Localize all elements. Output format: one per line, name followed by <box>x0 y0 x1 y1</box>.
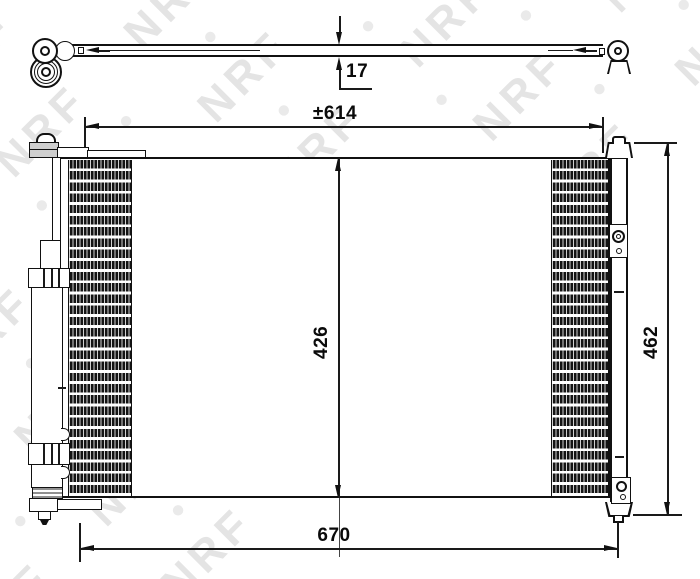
condenser-top-view: 17 <box>0 0 700 100</box>
top-view-left-pin-stem <box>99 50 110 52</box>
drier-clamp-lower <box>28 443 70 465</box>
left-upper-fitting-hole <box>40 46 50 56</box>
top-view-right-pin-stem <box>586 50 597 52</box>
drier-clamp-lower-div1 <box>43 444 45 464</box>
drier-weld-tick <box>58 387 66 389</box>
dim426-top-arrow-icon <box>335 158 341 171</box>
dim426-line <box>338 158 340 498</box>
drier-top-bracket-inner <box>57 147 89 158</box>
dim670-left-arrow-icon <box>81 545 94 551</box>
dim462-label: 462 <box>641 303 663 359</box>
dim17-leader <box>339 88 372 90</box>
lower-fitting-bolt-hole <box>620 494 626 500</box>
right-header-top-cap-face <box>607 144 631 158</box>
dim670-right-arrow-icon <box>604 545 617 551</box>
top-view-right-pin-arrow-icon <box>573 47 586 53</box>
right-fitting-hole <box>614 47 622 55</box>
drier-clamp-upper-div1 <box>43 269 45 287</box>
right-header-tank <box>610 157 628 503</box>
dim462-ext-bottom <box>633 514 682 516</box>
dim17-upper-arrow-icon <box>336 32 342 45</box>
dim670-ext-left <box>79 523 81 562</box>
lower-fitting-port-ring <box>616 481 627 492</box>
dim17-label: 17 <box>346 61 368 83</box>
condenser-core-outline <box>59 157 610 498</box>
drier-clamp-upper-div2 <box>51 269 53 287</box>
drier-clamp-upper-div3 <box>58 269 60 287</box>
left-fitting-port-hole <box>41 67 51 77</box>
drier-pipe <box>52 158 61 241</box>
top-view-left-leader-line <box>110 50 260 51</box>
right-header-bottom-nub <box>613 516 624 523</box>
upper-fitting-port-hole <box>616 234 621 239</box>
dim462-line <box>667 143 669 515</box>
right-fitting-bracket-face <box>609 62 629 74</box>
drawing-layer: 17 ±614 <box>0 0 700 579</box>
dim426-bottom-arrow-icon <box>335 485 341 498</box>
top-view-left-pin-arrow-icon <box>86 47 99 53</box>
right-header-weld-tick-lower <box>615 456 624 458</box>
drier-clamp-lower-div2 <box>51 444 53 464</box>
drier-bottom-cap <box>29 498 58 512</box>
drier-clamp-lower-div3 <box>58 444 60 464</box>
drier-bottom-bracket <box>57 499 102 510</box>
dim614-left-arrow-icon <box>86 123 99 129</box>
dim670-line <box>80 548 618 550</box>
dim17-lower-arrow-icon <box>336 57 342 70</box>
drier-cap-ring-2 <box>29 149 59 158</box>
top-view-right-leader-line <box>548 50 573 51</box>
top-view-left-pin-block <box>78 47 84 54</box>
drier-clamp-upper <box>28 268 70 288</box>
dim426-label: 426 <box>311 303 333 359</box>
drier-drain-nozzle <box>38 511 51 520</box>
dim462-bottom-arrow-icon <box>664 502 670 515</box>
upper-fitting-bolt-hole <box>616 248 622 254</box>
fin-block-right <box>551 160 609 496</box>
dim614-right-arrow-icon <box>589 123 602 129</box>
dim670-label: 670 <box>302 525 366 547</box>
dim17-lower-shaft <box>339 70 341 89</box>
dim462-top-arrow-icon <box>664 143 670 156</box>
dim462-ext-top <box>634 142 677 144</box>
drawing-canvas: NRF NRF NRF NRF NRF NRF NRF ● ● ● ● ● ● … <box>0 0 700 579</box>
dim17-upper-shaft <box>339 16 341 33</box>
right-header-top-tab <box>612 136 626 144</box>
drier-upper-body <box>40 240 61 269</box>
dim614-line <box>85 126 603 128</box>
top-view-right-pin-block <box>599 48 605 55</box>
dim614-label: ±614 <box>303 103 367 125</box>
drier-top-bracket-outer <box>87 150 146 158</box>
left-upper-fitting-body <box>55 41 75 61</box>
right-header-weld-tick-upper <box>614 291 624 293</box>
dim670-ext-right <box>617 522 619 558</box>
